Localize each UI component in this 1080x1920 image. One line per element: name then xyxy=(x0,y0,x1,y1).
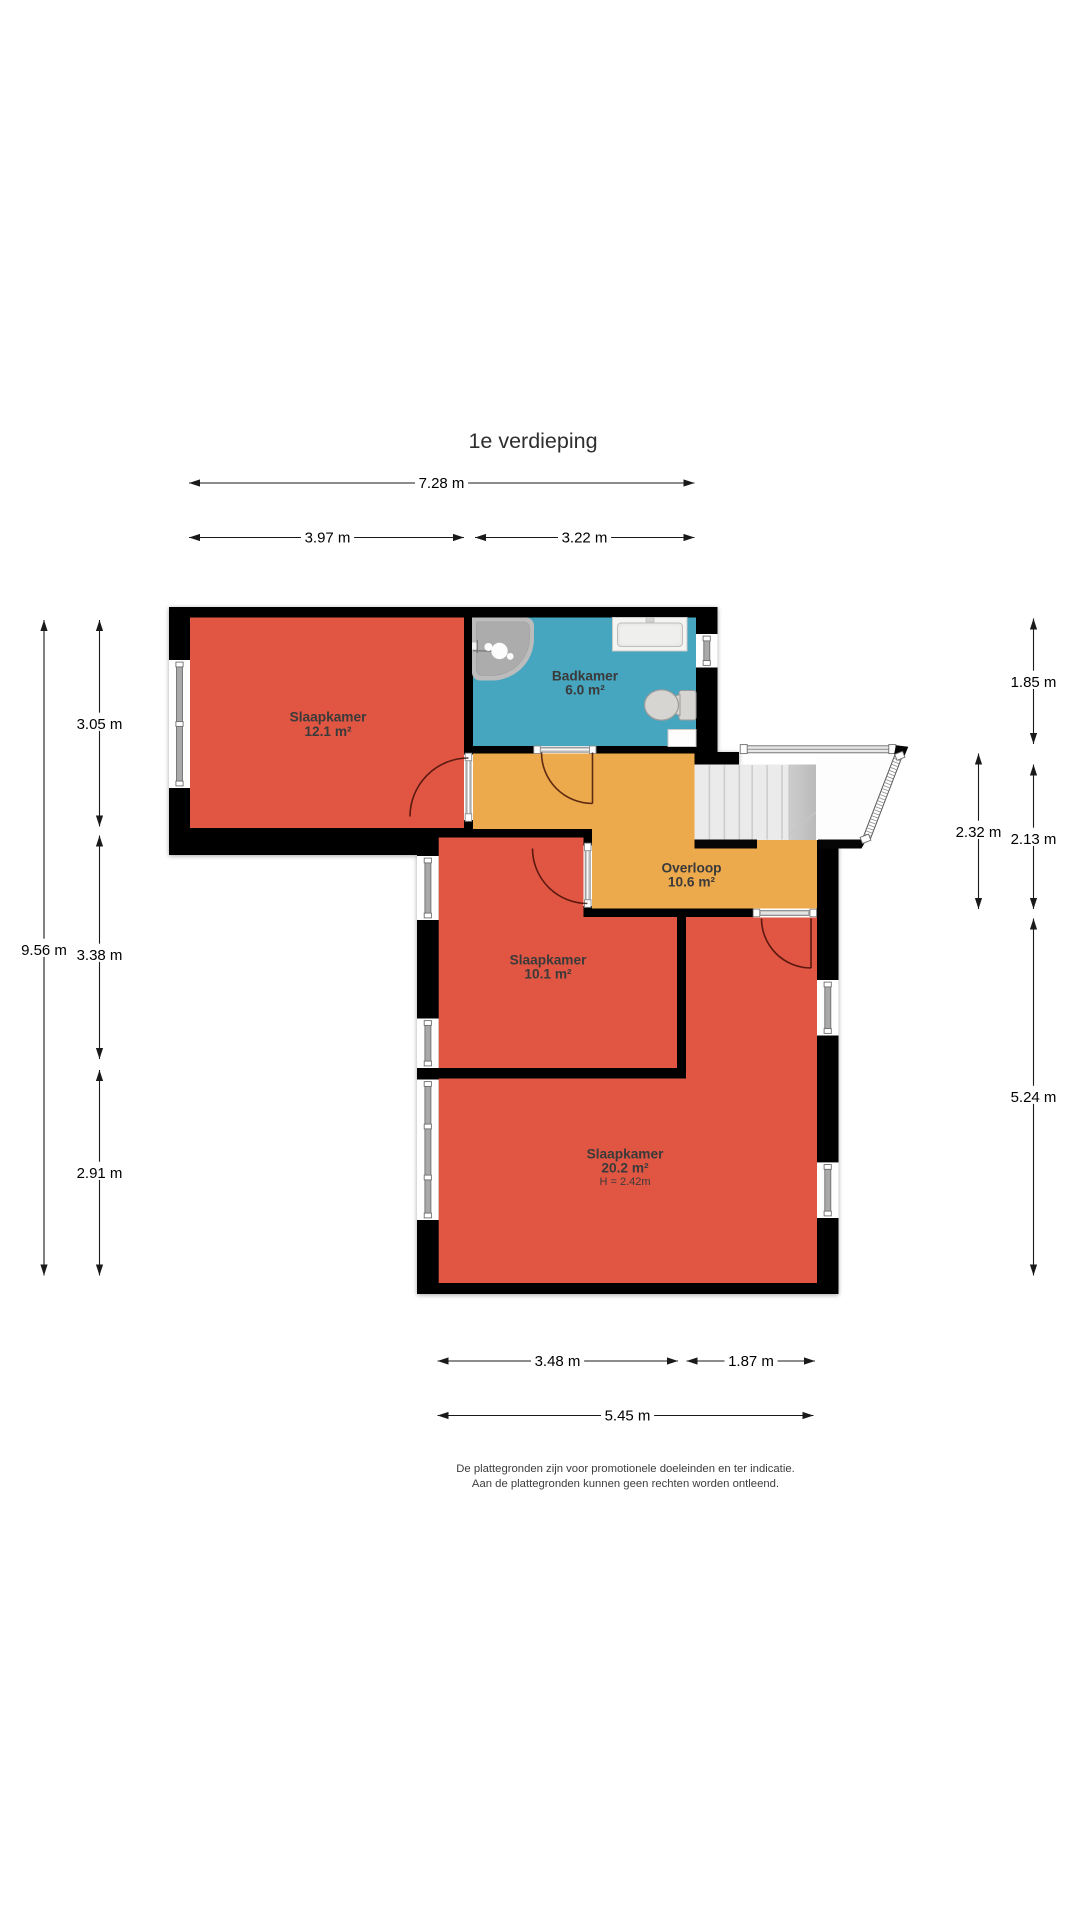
svg-text:3.48 m: 3.48 m xyxy=(535,1353,581,1370)
svg-text:2.13 m: 2.13 m xyxy=(1011,831,1057,848)
svg-text:Badkamer: Badkamer xyxy=(552,669,619,684)
svg-text:12.1 m²: 12.1 m² xyxy=(304,724,352,739)
svg-text:De plattegronden zijn voor pro: De plattegronden zijn voor promotionele … xyxy=(456,1463,795,1475)
svg-text:Overloop: Overloop xyxy=(661,861,721,876)
svg-text:Slaapkamer: Slaapkamer xyxy=(587,1147,665,1162)
svg-text:3.22 m: 3.22 m xyxy=(562,530,608,547)
svg-text:1.87 m: 1.87 m xyxy=(728,1353,774,1370)
svg-text:3.97 m: 3.97 m xyxy=(305,530,351,547)
svg-text:3.05 m: 3.05 m xyxy=(77,716,123,733)
svg-text:7.28 m: 7.28 m xyxy=(419,475,465,492)
svg-text:5.45 m: 5.45 m xyxy=(605,1408,651,1425)
svg-text:Slaapkamer: Slaapkamer xyxy=(510,953,588,968)
svg-text:H = 2.42m: H = 2.42m xyxy=(599,1176,650,1188)
svg-text:10.6 m²: 10.6 m² xyxy=(668,875,716,890)
svg-text:2.91 m: 2.91 m xyxy=(77,1165,123,1182)
svg-text:5.24 m: 5.24 m xyxy=(1011,1089,1057,1106)
svg-text:Slaapkamer: Slaapkamer xyxy=(290,710,368,725)
svg-text:9.56 m: 9.56 m xyxy=(21,942,67,959)
svg-text:1e verdieping: 1e verdieping xyxy=(468,429,597,453)
svg-text:2.32 m: 2.32 m xyxy=(956,824,1002,841)
svg-text:6.0 m²: 6.0 m² xyxy=(565,683,605,698)
svg-text:Aan de plattegronden kunnen ge: Aan de plattegronden kunnen geen rechten… xyxy=(472,1478,779,1490)
svg-text:10.1 m²: 10.1 m² xyxy=(524,967,572,982)
svg-text:20.2 m²: 20.2 m² xyxy=(601,1161,649,1176)
svg-text:3.38 m: 3.38 m xyxy=(77,947,123,964)
svg-text:1.85 m: 1.85 m xyxy=(1011,674,1057,691)
